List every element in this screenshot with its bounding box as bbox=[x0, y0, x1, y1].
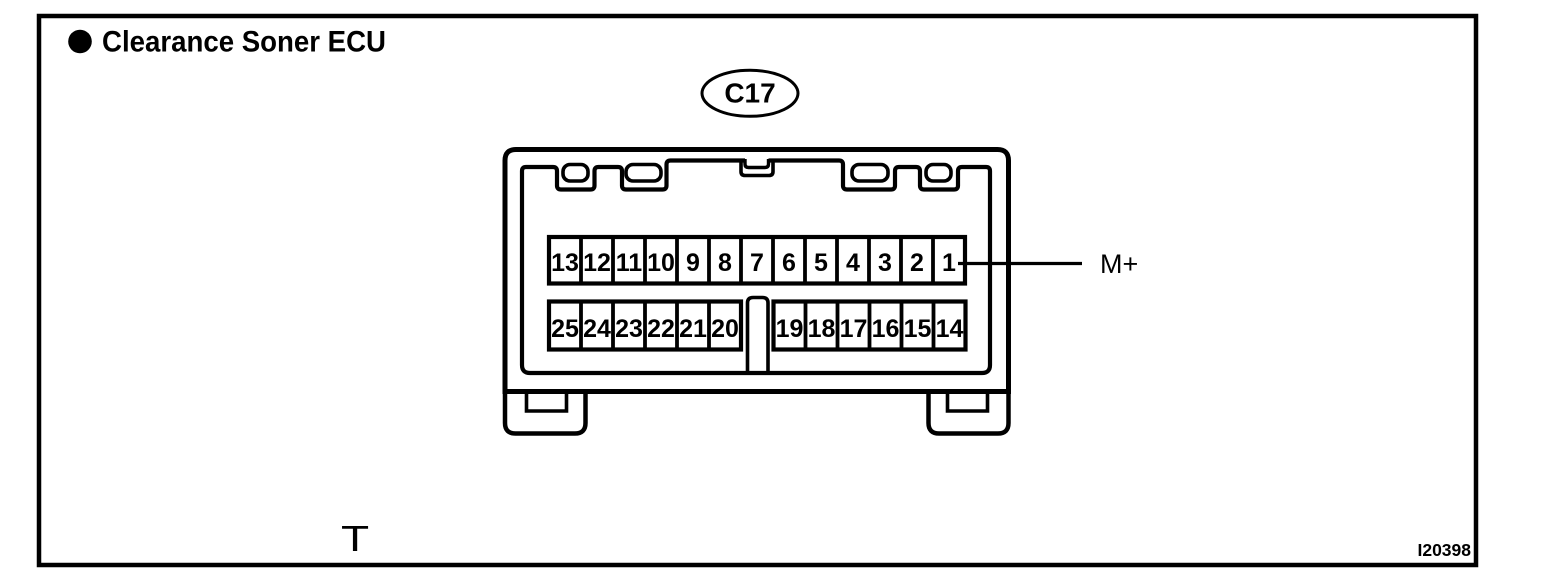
svg-text:C17: C17 bbox=[724, 78, 775, 109]
svg-text:14: 14 bbox=[936, 315, 964, 343]
svg-text:3: 3 bbox=[878, 249, 892, 277]
svg-text:2: 2 bbox=[910, 249, 924, 277]
svg-text:11: 11 bbox=[616, 249, 643, 277]
svg-text:25: 25 bbox=[551, 315, 579, 343]
svg-text:10: 10 bbox=[647, 249, 675, 277]
svg-text:24: 24 bbox=[583, 315, 611, 343]
svg-text:M+: M+ bbox=[1100, 249, 1138, 279]
svg-text:T: T bbox=[341, 519, 369, 559]
svg-text:17: 17 bbox=[840, 315, 868, 343]
svg-text:6: 6 bbox=[782, 249, 796, 277]
svg-text:4: 4 bbox=[846, 249, 860, 277]
svg-text:Clearance Soner ECU: Clearance Soner ECU bbox=[102, 26, 386, 59]
svg-text:16: 16 bbox=[872, 315, 900, 343]
svg-text:23: 23 bbox=[615, 315, 643, 343]
svg-text:15: 15 bbox=[904, 315, 932, 343]
svg-text:1: 1 bbox=[942, 249, 956, 277]
svg-text:I20398: I20398 bbox=[1417, 540, 1471, 560]
svg-text:20: 20 bbox=[711, 315, 739, 343]
svg-text:8: 8 bbox=[718, 249, 732, 277]
svg-text:22: 22 bbox=[647, 315, 675, 343]
svg-text:12: 12 bbox=[583, 249, 611, 277]
svg-text:19: 19 bbox=[776, 315, 804, 343]
svg-text:5: 5 bbox=[814, 249, 828, 277]
svg-text:18: 18 bbox=[808, 315, 836, 343]
svg-text:13: 13 bbox=[551, 249, 579, 277]
svg-text:9: 9 bbox=[686, 249, 700, 277]
svg-text:7: 7 bbox=[750, 249, 764, 277]
svg-text:21: 21 bbox=[679, 315, 707, 343]
